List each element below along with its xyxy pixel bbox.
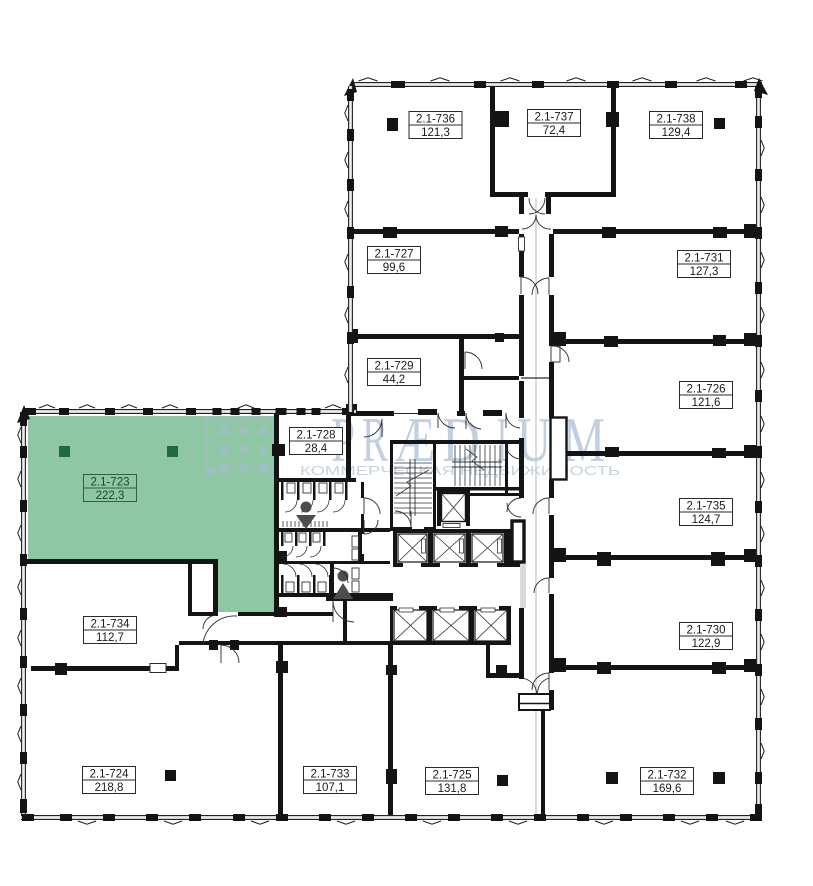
svg-text:44,2: 44,2 — [383, 374, 405, 386]
svg-text:2.1-723: 2.1-723 — [90, 476, 129, 488]
svg-text:72,4: 72,4 — [543, 125, 566, 137]
svg-text:2.1-727: 2.1-727 — [374, 248, 413, 260]
svg-text:2.1-732: 2.1-732 — [647, 769, 686, 781]
svg-text:2.1-729: 2.1-729 — [374, 360, 413, 372]
svg-text:99,6: 99,6 — [383, 262, 405, 274]
svg-text:2.1-735: 2.1-735 — [686, 500, 725, 512]
svg-text:2.1-730: 2.1-730 — [686, 624, 725, 636]
svg-text:112,7: 112,7 — [96, 632, 124, 644]
svg-text:124,7: 124,7 — [692, 514, 721, 526]
svg-text:169,6: 169,6 — [653, 783, 682, 795]
svg-text:2.1-737: 2.1-737 — [534, 111, 573, 123]
svg-text:2.1-736: 2.1-736 — [416, 113, 455, 125]
svg-text:2.1-724: 2.1-724 — [89, 768, 129, 780]
svg-text:2.1-734: 2.1-734 — [90, 618, 130, 630]
svg-text:2.1-728: 2.1-728 — [296, 429, 335, 441]
svg-text:2.1-731: 2.1-731 — [684, 252, 723, 264]
svg-text:2.1-726: 2.1-726 — [686, 383, 725, 395]
svg-text:121,6: 121,6 — [692, 397, 721, 409]
svg-text:129,4: 129,4 — [662, 127, 691, 139]
svg-text:122,9: 122,9 — [692, 638, 721, 650]
svg-text:2.1-725: 2.1-725 — [432, 769, 471, 781]
svg-text:2.1-733: 2.1-733 — [310, 768, 349, 780]
svg-text:222,3: 222,3 — [96, 490, 125, 502]
svg-text:218,8: 218,8 — [95, 782, 124, 794]
svg-text:28,4: 28,4 — [305, 443, 328, 455]
svg-text:131,8: 131,8 — [438, 783, 467, 795]
svg-text:121,3: 121,3 — [421, 127, 450, 139]
svg-text:2.1-738: 2.1-738 — [656, 113, 695, 125]
svg-text:127,3: 127,3 — [690, 266, 719, 278]
svg-text:107,1: 107,1 — [316, 782, 345, 794]
